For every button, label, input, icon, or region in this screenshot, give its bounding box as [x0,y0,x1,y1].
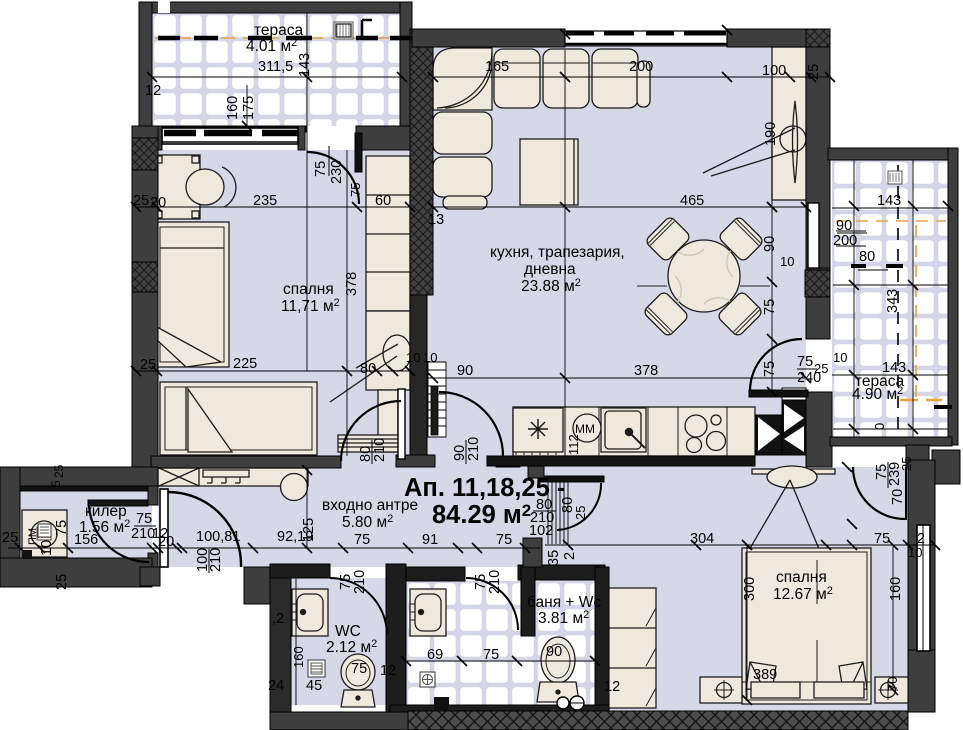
svg-text:24: 24 [268,678,284,694]
svg-text:200: 200 [629,59,653,75]
svg-text:3.81 м2: 3.81 м2 [538,609,589,627]
svg-text:75: 75 [348,183,363,197]
svg-text:25: 25 [133,193,149,209]
svg-text:230: 230 [329,160,345,184]
svg-text:10: 10 [423,350,437,365]
svg-text:75: 75 [762,299,778,315]
svg-text:45: 45 [306,678,322,694]
svg-text:70: 70 [890,489,906,505]
svg-text:4.01 м2: 4.01 м2 [246,37,297,55]
svg-text:143: 143 [297,53,313,77]
svg-text:25: 25 [806,64,822,80]
svg-text:2.12 м2: 2.12 м2 [326,638,377,656]
svg-text:160: 160 [225,96,241,120]
svg-text:кухня, трапезария,: кухня, трапезария, [490,244,625,261]
svg-text:91: 91 [422,532,438,548]
svg-text:WC: WC [335,623,361,640]
svg-text:389: 389 [753,667,777,683]
svg-text:12: 12 [604,679,620,695]
svg-text:156: 156 [74,532,98,548]
svg-text:200: 200 [833,233,857,249]
svg-text:спалня: спалня [776,569,827,586]
svg-text:112: 112 [566,434,581,455]
svg-text:килер: килер [85,503,127,520]
svg-text:210: 210 [487,570,503,594]
svg-text:75: 75 [54,520,70,536]
svg-text:75: 75 [313,161,329,177]
svg-text:спалня: спалня [283,281,334,298]
svg-text:2: 2 [562,552,578,560]
svg-text:25: 25 [2,530,18,546]
svg-text:12: 12 [380,663,396,679]
svg-text:,2: ,2 [272,611,284,627]
svg-text:25: 25 [899,457,914,471]
svg-text:160: 160 [888,577,904,601]
svg-text:5: 5 [49,480,63,487]
svg-text:378: 378 [344,272,360,296]
svg-text:75: 75 [762,361,778,377]
svg-text:80: 80 [859,249,875,265]
svg-text:5.80 м2: 5.80 м2 [342,513,393,531]
svg-text:25: 25 [54,574,70,590]
svg-text:0: 0 [872,423,887,430]
svg-text:210: 210 [372,438,388,462]
svg-text:80: 80 [360,361,376,377]
svg-text:90: 90 [457,363,473,379]
svg-text:10: 10 [780,254,794,269]
svg-text:70: 70 [885,677,900,691]
svg-text:143: 143 [882,360,906,376]
svg-text:13: 13 [428,212,444,228]
svg-text:90: 90 [546,644,562,660]
svg-text:84.29 м2: 84.29 м2 [432,501,531,529]
svg-text:75: 75 [874,531,890,547]
svg-text:69: 69 [427,647,443,663]
svg-text:23.88 м2: 23.88 м2 [521,277,581,295]
svg-text:ПМ: ПМ [27,528,39,545]
svg-text:378: 378 [634,363,658,379]
svg-text:20: 20 [150,195,166,211]
svg-text:10: 10 [908,545,922,560]
svg-text:125: 125 [301,518,317,542]
svg-text:90: 90 [762,236,778,252]
svg-text:235: 235 [253,193,277,209]
svg-text:210: 210 [352,570,368,594]
svg-text:165: 165 [485,59,509,75]
svg-text:4.90 м2: 4.90 м2 [852,385,903,403]
svg-text:100: 100 [762,63,786,79]
svg-text:баня + Wc: баня + Wc [527,594,601,611]
svg-text:75: 75 [496,532,512,548]
svg-text:12.67 м2: 12.67 м2 [773,585,833,603]
svg-text:75: 75 [351,661,367,677]
svg-text:465: 465 [680,193,704,209]
svg-text:90: 90 [836,218,852,234]
svg-text:304: 304 [690,531,714,547]
svg-text:175: 175 [241,96,257,120]
svg-text:75: 75 [797,354,813,370]
svg-text:190: 190 [763,122,779,146]
svg-text:MM: MM [575,422,595,436]
svg-text:25: 25 [140,357,156,373]
svg-text:300: 300 [742,577,758,601]
svg-text:20: 20 [158,534,174,550]
svg-text:210: 210 [466,437,482,461]
svg-text:210: 210 [208,548,224,572]
svg-text:25: 25 [52,464,66,478]
svg-text:311,5: 311,5 [258,59,293,75]
svg-text:10: 10 [406,350,420,365]
svg-text:75: 75 [483,647,499,663]
svg-text:343: 343 [885,289,901,313]
svg-text:80: 80 [560,497,576,513]
svg-text:35: 35 [546,550,562,566]
svg-text:11,71 м2: 11,71 м2 [281,297,340,315]
svg-text:дневна: дневна [524,261,576,278]
svg-text:160: 160 [291,646,306,668]
svg-text:225: 225 [233,356,257,372]
svg-text:12: 12 [145,83,161,99]
svg-text:100,81: 100,81 [196,529,240,545]
svg-text:10: 10 [39,540,55,556]
svg-text:143: 143 [877,193,901,209]
svg-text:75: 75 [354,532,370,548]
svg-text:60: 60 [375,193,391,209]
svg-text:10: 10 [833,350,847,365]
svg-text:75: 75 [136,511,152,527]
svg-text:102: 102 [529,523,553,539]
